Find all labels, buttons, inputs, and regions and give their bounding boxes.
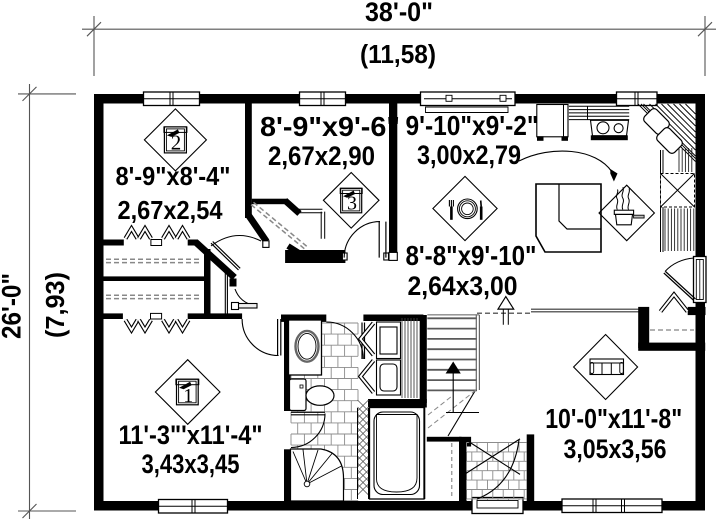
- svg-text:10'-0"x11'-8": 10'-0"x11'-8": [545, 403, 682, 434]
- svg-text:3,43x3,45: 3,43x3,45: [142, 449, 240, 479]
- svg-text:(7,93): (7,93): [40, 272, 70, 338]
- svg-text:1: 1: [183, 385, 193, 407]
- svg-text:3,00x2,79: 3,00x2,79: [417, 140, 521, 170]
- svg-text:2: 2: [171, 131, 182, 155]
- svg-text:9'-10"x9'-2": 9'-10"x9'-2": [406, 110, 539, 141]
- svg-text:2,67x2,90: 2,67x2,90: [268, 141, 375, 171]
- svg-text:2,64x3,00: 2,64x3,00: [408, 271, 518, 301]
- svg-text:8'-8"x9'-10": 8'-8"x9'-10": [406, 240, 537, 271]
- svg-text:11'-3"'x11'-4": 11'-3"'x11'-4": [119, 420, 263, 450]
- svg-text:3: 3: [347, 193, 357, 215]
- svg-text:26'-0": 26'-0": [0, 273, 27, 339]
- svg-text:(11,58): (11,58): [360, 39, 436, 69]
- svg-text:2,67x2,54: 2,67x2,54: [118, 195, 223, 225]
- svg-text:8'-9"x9'-6": 8'-9"x9'-6": [260, 111, 400, 142]
- svg-text:3,05x3,56: 3,05x3,56: [564, 434, 667, 464]
- svg-text:38'-0": 38'-0": [365, 0, 433, 27]
- svg-text:8'-9"x8'-4": 8'-9"x8'-4": [116, 161, 231, 191]
